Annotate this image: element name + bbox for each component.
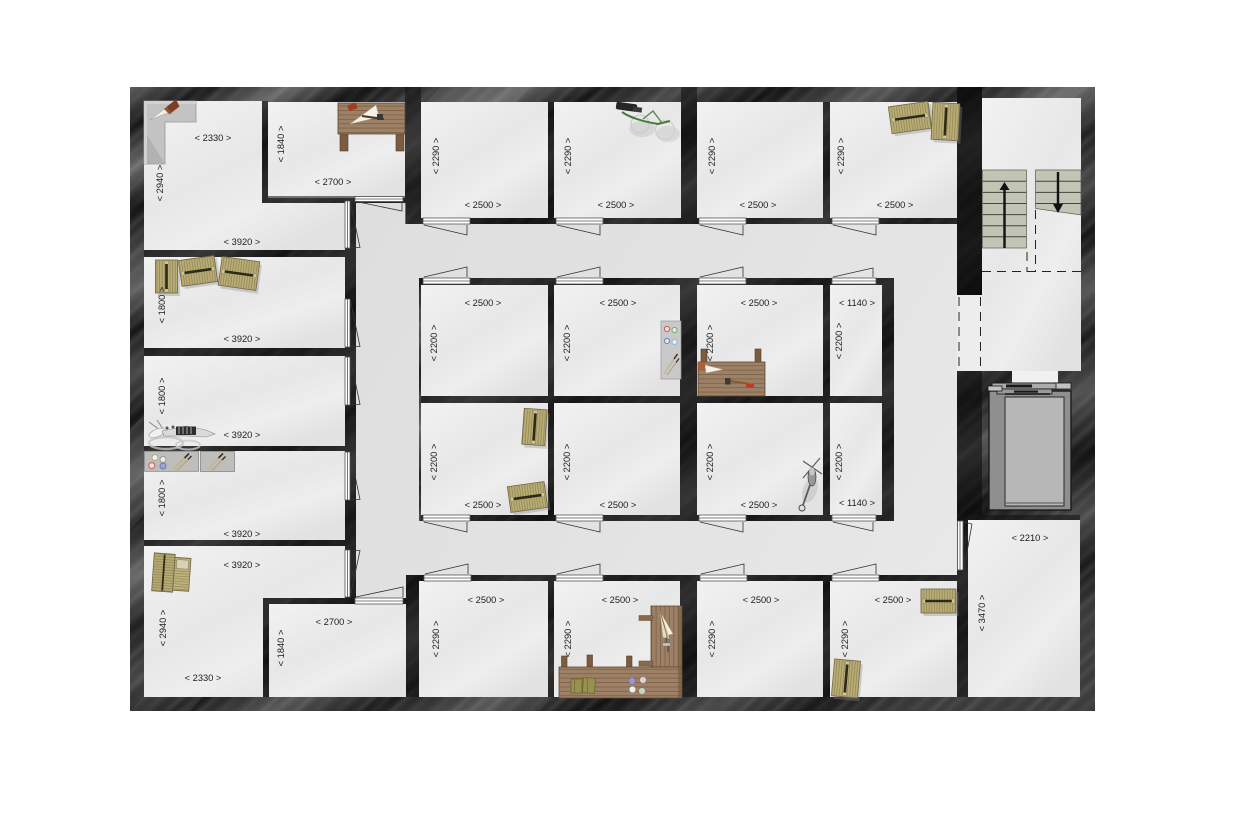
- svg-text:< 2940 >: < 2940 >: [155, 165, 165, 202]
- svg-text:< 2500 >: < 2500 >: [600, 500, 637, 510]
- svg-text:< 2500 >: < 2500 >: [465, 298, 502, 308]
- svg-text:< 2210 >: < 2210 >: [1012, 533, 1049, 543]
- svg-text:< 2500 >: < 2500 >: [740, 200, 777, 210]
- svg-text:< 2290 >: < 2290 >: [431, 138, 441, 175]
- svg-text:< 2200 >: < 2200 >: [705, 444, 715, 481]
- svg-text:< 2500 >: < 2500 >: [877, 200, 914, 210]
- svg-text:< 2500 >: < 2500 >: [602, 595, 639, 605]
- svg-text:< 2500 >: < 2500 >: [741, 500, 778, 510]
- svg-text:< 2200 >: < 2200 >: [429, 325, 439, 362]
- svg-text:< 2290 >: < 2290 >: [840, 621, 850, 658]
- svg-text:< 1800 >: < 1800 >: [157, 378, 167, 415]
- svg-text:< 2940 >: < 2940 >: [158, 610, 168, 647]
- svg-text:< 3920 >: < 3920 >: [224, 430, 261, 440]
- svg-text:< 1800 >: < 1800 >: [157, 480, 167, 517]
- svg-text:< 2290 >: < 2290 >: [563, 138, 573, 175]
- svg-text:< 2200 >: < 2200 >: [429, 444, 439, 481]
- svg-text:< 2290 >: < 2290 >: [563, 621, 573, 658]
- svg-text:< 2500 >: < 2500 >: [600, 298, 637, 308]
- svg-text:< 2200 >: < 2200 >: [562, 444, 572, 481]
- svg-text:< 2500 >: < 2500 >: [468, 595, 505, 605]
- svg-text:< 1840 >: < 1840 >: [276, 126, 286, 163]
- svg-text:< 2500 >: < 2500 >: [465, 500, 502, 510]
- svg-text:< 2500 >: < 2500 >: [875, 595, 912, 605]
- svg-text:< 2290 >: < 2290 >: [431, 621, 441, 658]
- svg-text:< 3470 >: < 3470 >: [977, 595, 987, 632]
- svg-text:< 2500 >: < 2500 >: [465, 200, 502, 210]
- svg-text:< 2500 >: < 2500 >: [598, 200, 635, 210]
- svg-text:< 3920 >: < 3920 >: [224, 237, 261, 247]
- svg-text:< 1140 >: < 1140 >: [839, 498, 875, 508]
- svg-text:< 2200 >: < 2200 >: [834, 444, 844, 481]
- svg-text:< 2290 >: < 2290 >: [836, 138, 846, 175]
- svg-text:< 2330 >: < 2330 >: [195, 133, 232, 143]
- svg-text:< 2200 >: < 2200 >: [705, 325, 715, 362]
- svg-text:< 2500 >: < 2500 >: [741, 298, 778, 308]
- svg-text:< 3920 >: < 3920 >: [224, 334, 261, 344]
- svg-text:< 2500 >: < 2500 >: [743, 595, 780, 605]
- svg-text:< 2200 >: < 2200 >: [834, 323, 844, 360]
- svg-text:< 2290 >: < 2290 >: [707, 621, 717, 658]
- svg-text:< 2700 >: < 2700 >: [315, 177, 352, 187]
- svg-text:< 3920 >: < 3920 >: [224, 560, 261, 570]
- svg-text:< 1800 >: < 1800 >: [157, 287, 167, 324]
- svg-text:< 2200 >: < 2200 >: [562, 325, 572, 362]
- svg-text:< 1840 >: < 1840 >: [276, 630, 286, 667]
- svg-text:< 2700 >: < 2700 >: [316, 617, 353, 627]
- svg-text:< 2290 >: < 2290 >: [707, 138, 717, 175]
- svg-text:< 2330 >: < 2330 >: [185, 673, 222, 683]
- svg-text:< 3920 >: < 3920 >: [224, 529, 261, 539]
- svg-text:< 1140 >: < 1140 >: [839, 298, 875, 308]
